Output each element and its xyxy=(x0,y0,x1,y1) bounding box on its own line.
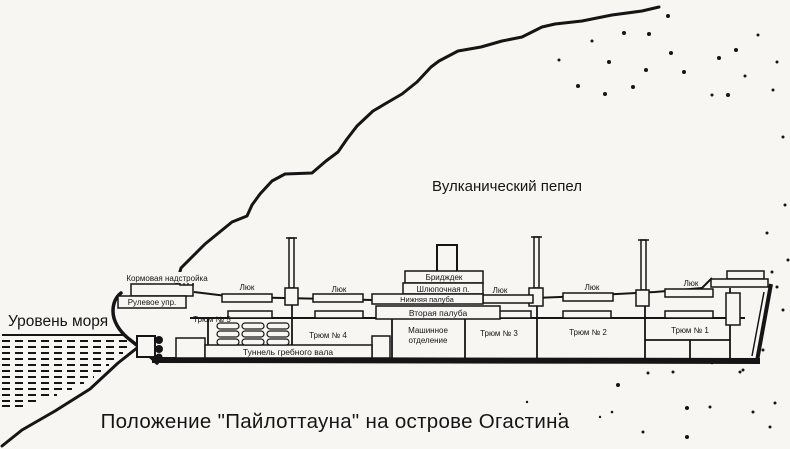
hull-bottom xyxy=(152,360,760,361)
hatch-label-hold3: Люк xyxy=(493,286,508,295)
diagram-page: Уровень моря Вулканический пепел xyxy=(0,0,790,449)
paper-background xyxy=(0,0,790,449)
engine-room-label-line1: Машинное xyxy=(408,326,448,335)
bridge-deck-label: Бридждек xyxy=(426,273,463,282)
stern-superstructure-label: Кормовая надстройка xyxy=(126,274,208,283)
hold5-label: Трюм № 5 xyxy=(193,315,231,324)
hold4-label: Трюм № 4 xyxy=(309,331,347,340)
sea-level-label: Уровень моря xyxy=(8,313,108,330)
funnel xyxy=(437,245,457,272)
hold2-label: Трюм № 2 xyxy=(569,328,607,337)
rudder-propeller xyxy=(137,336,163,361)
figure-caption: Положение "Пайлоттауна" на острове Огаст… xyxy=(101,410,570,433)
hold5-cargo xyxy=(217,323,289,345)
steering-gear-label: Рулевое упр. xyxy=(128,298,177,307)
lower-deck-label: Нижняя палуба xyxy=(400,295,455,304)
hatch-label-hold2: Люк xyxy=(585,283,600,292)
hold1-label: Трюм № 1 xyxy=(671,326,709,335)
hatch-label-hold4: Люк xyxy=(332,285,347,294)
ship-aground-diagram: Уровень моря Вулканический пепел xyxy=(0,0,790,449)
hatch-label-hold5: Люк xyxy=(240,283,255,292)
engine-room-label-line2: отделение xyxy=(409,336,449,345)
volcanic-ash-label: Вулканический пепел xyxy=(432,178,582,195)
second-deck-label: Вторая палуба xyxy=(409,308,468,318)
boat-deck-label: Шлюпочная п. xyxy=(417,285,470,294)
hold3-label: Трюм № 3 xyxy=(480,329,518,338)
shaft-tunnel-label: Туннель гребного вала xyxy=(243,347,333,357)
hatch-label-hold1: Люк xyxy=(684,279,699,288)
